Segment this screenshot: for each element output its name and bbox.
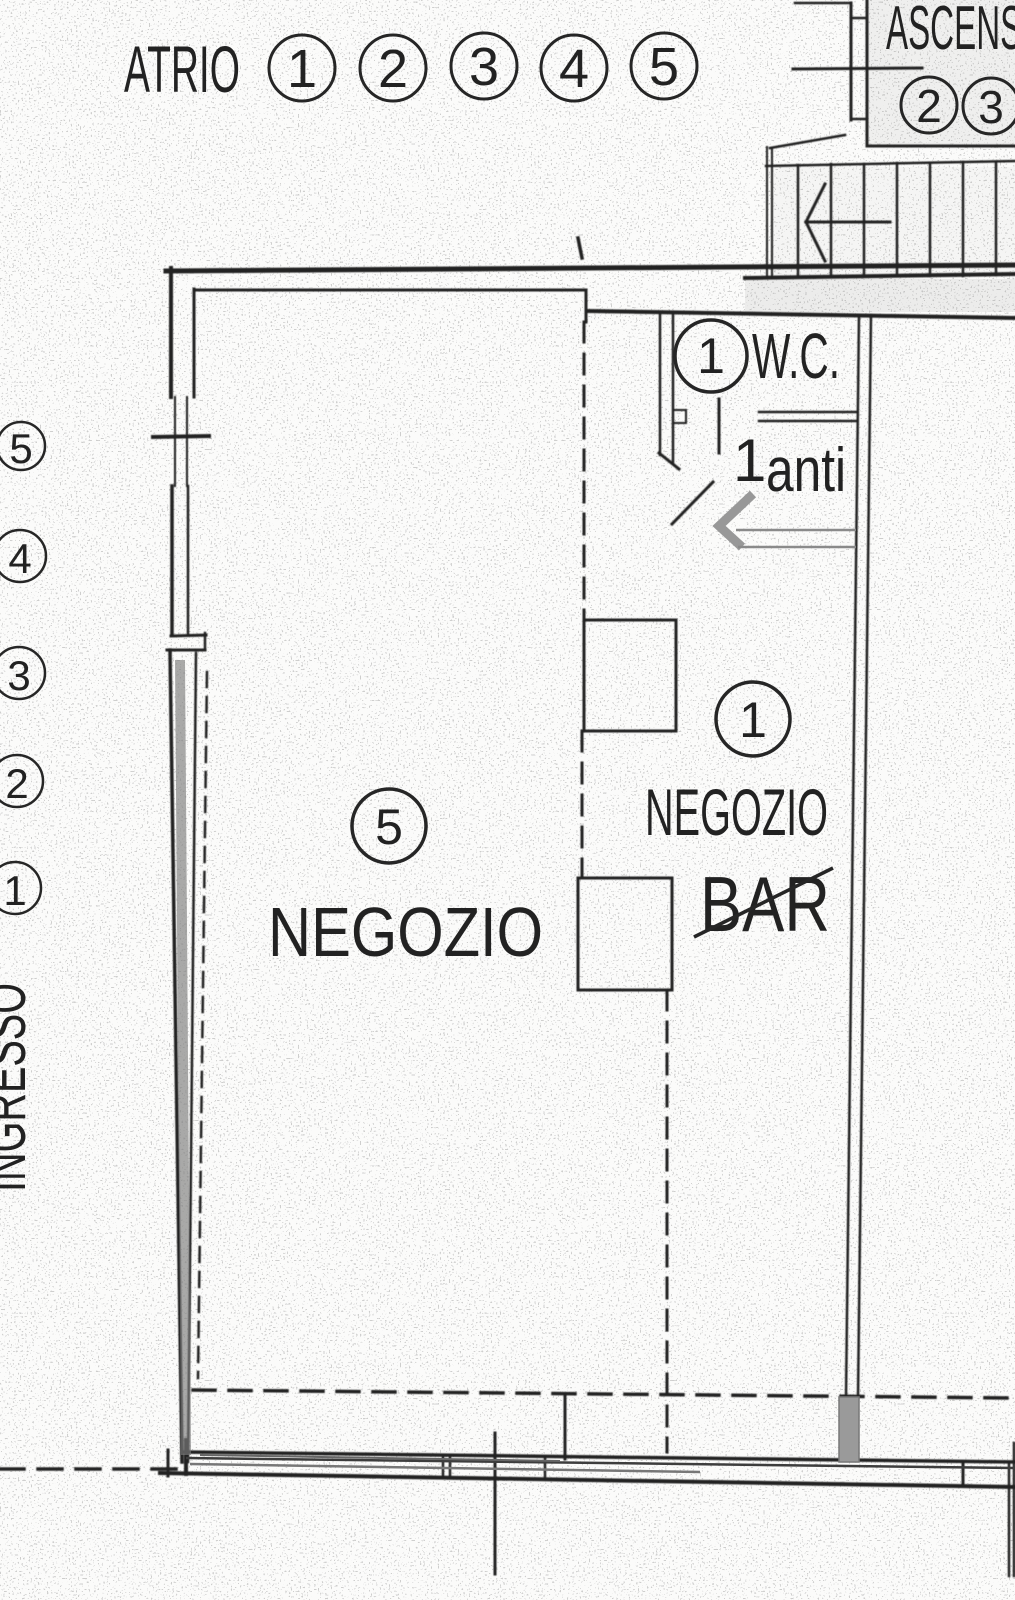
svg-text:NEGOZIO: NEGOZIO (645, 775, 828, 849)
svg-text:2: 2 (916, 80, 942, 132)
svg-text:2: 2 (5, 760, 28, 807)
svg-text:3: 3 (469, 37, 499, 97)
svg-text:anti: anti (766, 436, 846, 505)
svg-text:ATRIO: ATRIO (124, 32, 240, 106)
svg-text:BAR: BAR (700, 860, 830, 948)
svg-text:4: 4 (8, 535, 31, 582)
svg-text:1: 1 (287, 39, 317, 99)
svg-text:2: 2 (378, 39, 408, 99)
svg-text:NEGOZIO: NEGOZIO (268, 893, 543, 971)
svg-text:W.C.: W.C. (752, 320, 840, 392)
svg-text:1: 1 (739, 692, 767, 748)
svg-text:ASCENSORE: ASCENSORE (886, 0, 1015, 63)
svg-text:5: 5 (9, 425, 32, 472)
svg-text:5: 5 (375, 799, 403, 855)
svg-text:3: 3 (978, 81, 1004, 133)
svg-text:1: 1 (733, 427, 766, 494)
svg-text:4: 4 (559, 39, 589, 99)
svg-text:INGRESSO: INGRESSO (0, 983, 38, 1192)
svg-text:1: 1 (697, 328, 725, 384)
svg-text:1: 1 (3, 867, 26, 914)
svg-text:3: 3 (7, 652, 30, 699)
svg-text:5: 5 (649, 37, 679, 97)
